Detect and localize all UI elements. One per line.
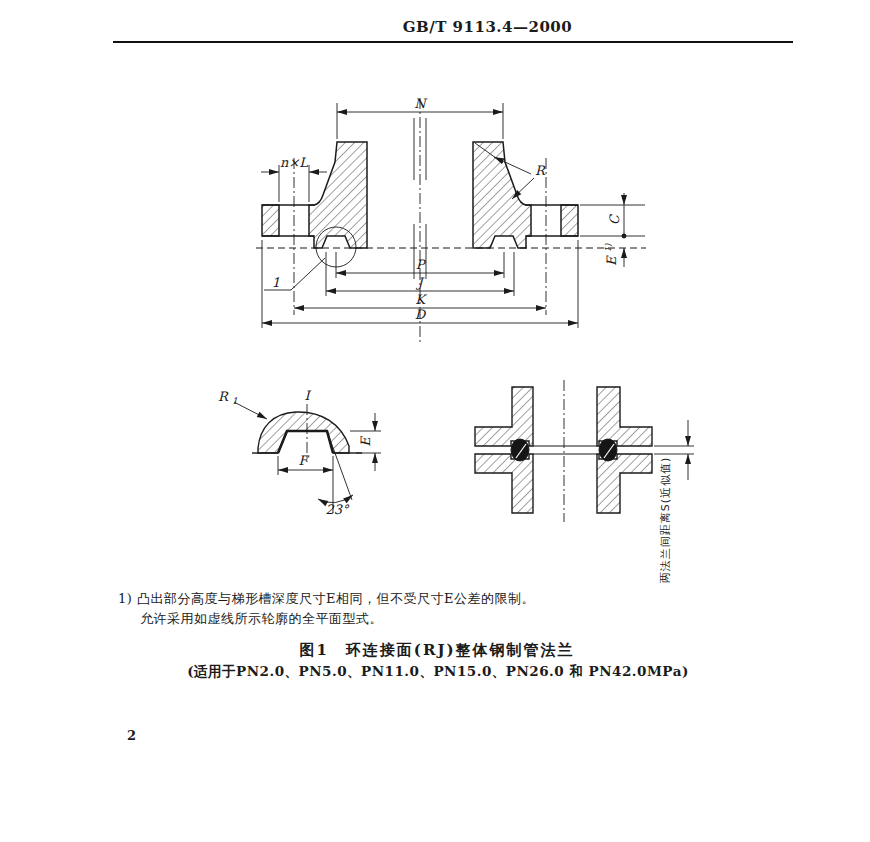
dim-label-J: J [415,275,424,290]
detail-view-groove: R 1 Ⅰ E F 23° [218,388,381,517]
dim-label-C: C [607,213,622,225]
figure-1-drawing: N n×L R C E 1) P J K D 1 [0,0,870,842]
detail-ref-label: 1 [272,275,280,290]
angle-label: 23° [325,502,350,517]
left-hub-section [309,142,367,248]
assembly-note-label: 两法兰间距离S(近似值) [659,457,672,584]
dim-label-R1: R 1 [218,389,238,406]
dim-label-D: D [415,307,427,322]
dim-label-P: P [416,257,427,272]
figure-caption-scope: (适用于PN2.0、PN5.0、PN11.0、PN15.0、PN26.0 和 P… [162,663,714,681]
dim-label-F: F [298,453,309,468]
ring-gasket-left [511,439,529,461]
groove-thick-profile [278,431,333,453]
right-hub-section [473,142,531,248]
groove-profile-section [258,412,349,453]
dim-label-E-detail: E [358,436,373,447]
detail-marker-label: Ⅰ [304,388,311,403]
right-rim-section [561,205,578,236]
footnote-line-2: 允许采用如虚线所示轮廓的全平面型式。 [140,610,383,628]
figure-caption-title: 图1 环连接面(RJ)整体钢制管法兰 [237,641,637,660]
dim-label-K: K [415,292,427,307]
dim-label-nxL: n×L [280,155,308,170]
dim-label-E-main: E 1) [603,243,619,266]
page-number: 2 [127,728,136,743]
main-flange-section: N n×L R C E 1) P J K D 1 [256,96,646,342]
dim-label-R: R [535,163,546,178]
document-page: GB/T 9113.4—2000 [0,0,870,842]
assembly-view: 两法兰间距离S(近似值) [475,380,694,583]
dim-label-N: N [414,96,428,111]
footnote-line-1: 1) 凸出部分高度与梯形槽深度尺寸E相同，但不受尺寸E公差的限制。 [118,590,535,608]
ring-gasket-right [599,439,617,461]
left-rim-section [262,205,279,236]
